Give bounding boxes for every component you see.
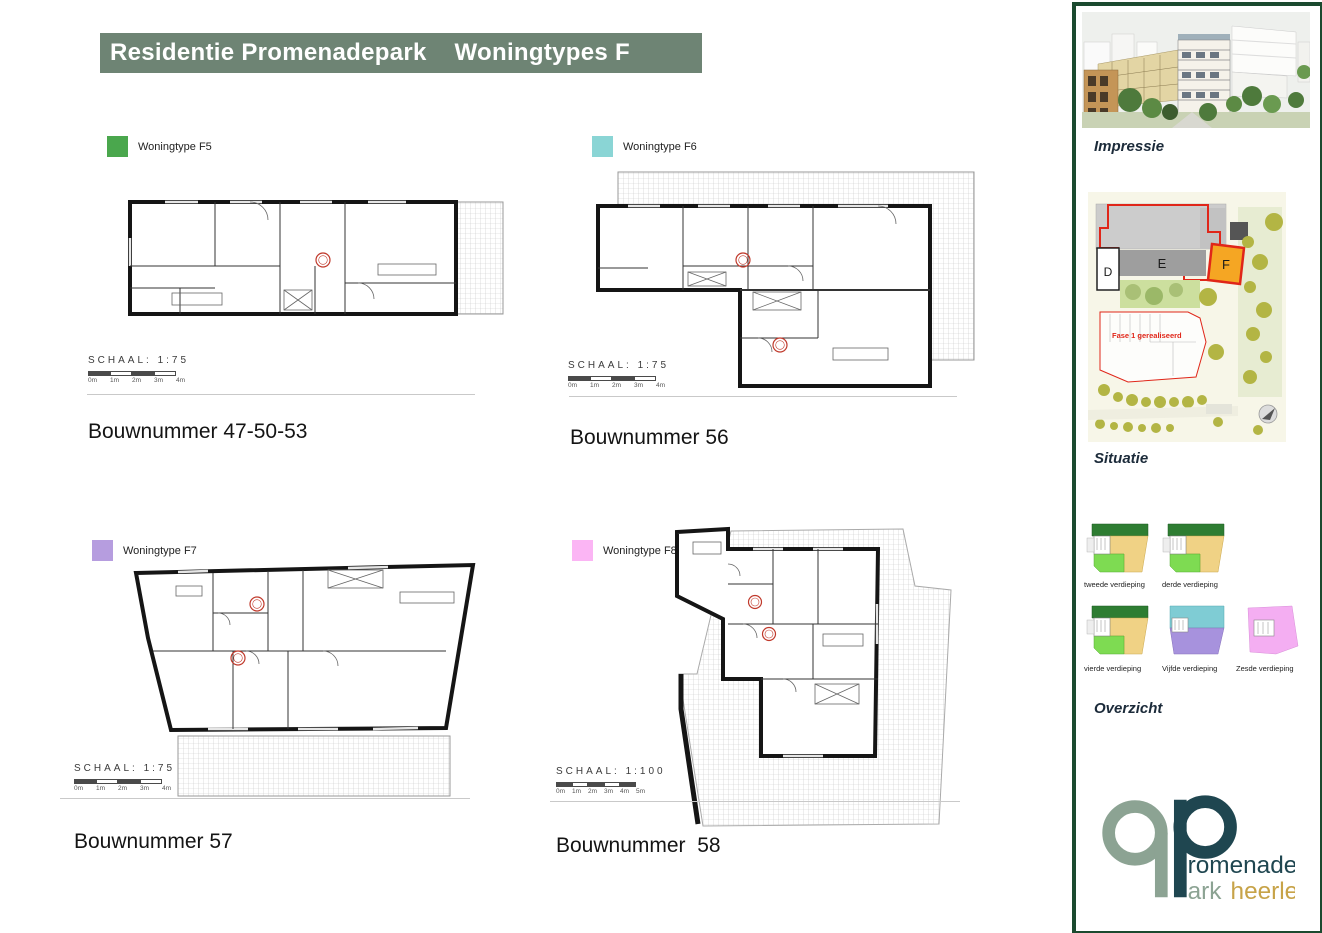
legend-f5: Woningtype F5 [107, 136, 212, 157]
bouwnummer-f6: Bouwnummer 56 [570, 426, 729, 450]
floor-caption-zesde: Zesde verdieping [1236, 664, 1308, 673]
legend-label-f6: Woningtype F6 [623, 141, 697, 153]
legend-swatch-f5 [107, 136, 128, 157]
legend-label-f5: Woningtype F5 [138, 141, 212, 153]
schaal-label-f5: SCHAAL: 1:75 [88, 355, 198, 366]
scalebar-f6 [568, 376, 678, 381]
section-divider-f7 [60, 798, 470, 799]
scalebar-ticks-f7: 0m1m 2m3m 4m [74, 785, 184, 792]
floor-thumb-zesde [1236, 602, 1304, 658]
section-divider-f5 [87, 394, 475, 395]
logo-text-heerlen: heerlen [1231, 878, 1295, 905]
situatie-building-d-label: D [1104, 265, 1113, 279]
logo-q-glyph [1109, 807, 1168, 898]
situatie-building-f-label: F [1222, 257, 1230, 272]
section-divider-f8 [550, 801, 960, 802]
floorplan-f5 [110, 188, 510, 330]
logo-text-park: ark [1188, 878, 1223, 905]
floor-thumb-vierde [1086, 602, 1154, 658]
schaal-label-f6: SCHAAL: 1:75 [568, 360, 678, 371]
situatie-label: Situatie [1094, 450, 1148, 467]
bouwnummer-f8: Bouwnummer 58 [556, 834, 721, 858]
promenadepark-logo: romenade ark heerlen [1090, 790, 1295, 907]
legend-f8: Woningtype F8 [572, 540, 677, 561]
compass-icon [1259, 405, 1277, 423]
floor-caption-derde: derde verdieping [1162, 580, 1234, 589]
legend-label-f7: Woningtype F7 [123, 545, 197, 557]
overzicht-label: Overzicht [1094, 700, 1162, 717]
scalebar-f7 [74, 779, 184, 784]
schaal-label-f7: SCHAAL: 1:75 [74, 763, 184, 774]
floorplan-f6 [588, 168, 986, 392]
legend-swatch-f6 [592, 136, 613, 157]
floorplan-f8 [663, 524, 975, 836]
schaal-label-f8: SCHAAL: 1:100 [556, 766, 666, 777]
impressie-label: Impressie [1094, 138, 1164, 155]
situatie-map: E D F Fase 1 gerealiseerd [1088, 192, 1286, 442]
legend-f6: Woningtype F6 [592, 136, 697, 157]
sidebar: Impressie E D F Fase 1 gerealiseerd [1072, 2, 1322, 933]
page-title: Residentie Promenadepark Woningtypes F [100, 33, 702, 73]
schaal-f6: SCHAAL: 1:75 0m1m 2m3m 4m [568, 360, 678, 389]
scalebar-ticks-f5: 0m1m 2m3m 4m [88, 377, 198, 384]
logo-text-promenade: romenade [1188, 852, 1295, 879]
floor-caption-vijfde: Vijfde verdieping [1162, 664, 1234, 673]
schaal-f7: SCHAAL: 1:75 0m1m 2m3m 4m [74, 763, 184, 792]
bouwnummer-f5: Bouwnummer 47-50-53 [88, 420, 307, 444]
brochure-page: Residentie Promenadepark Woningtypes F W… [0, 0, 1322, 933]
legend-swatch-f8 [572, 540, 593, 561]
section-divider-f6 [569, 396, 957, 397]
floor-caption-vierde: vierde verdieping [1084, 664, 1156, 673]
bouwnummer-f7: Bouwnummer 57 [74, 830, 233, 854]
scalebar-f8 [556, 782, 666, 787]
impression-render-image [1082, 12, 1310, 128]
scalebar-ticks-f6: 0m1m 2m3m 4m [568, 382, 678, 389]
situatie-phase-note: Fase 1 gerealiseerd [1112, 331, 1182, 340]
floor-thumb-tweede [1086, 520, 1154, 576]
floor-caption-tweede: tweede verdieping [1084, 580, 1156, 589]
scalebar-ticks-f8: 0m1m 2m3m 4m5m [556, 788, 666, 795]
schaal-f5: SCHAAL: 1:75 0m1m 2m3m 4m [88, 355, 198, 384]
floor-thumb-vijfde [1162, 602, 1230, 658]
scalebar-f5 [88, 371, 198, 376]
situatie-building-e-label: E [1158, 256, 1167, 271]
floor-thumb-derde [1162, 520, 1230, 576]
legend-swatch-f7 [92, 540, 113, 561]
schaal-f8: SCHAAL: 1:100 0m1m 2m3m 4m5m [556, 766, 666, 795]
